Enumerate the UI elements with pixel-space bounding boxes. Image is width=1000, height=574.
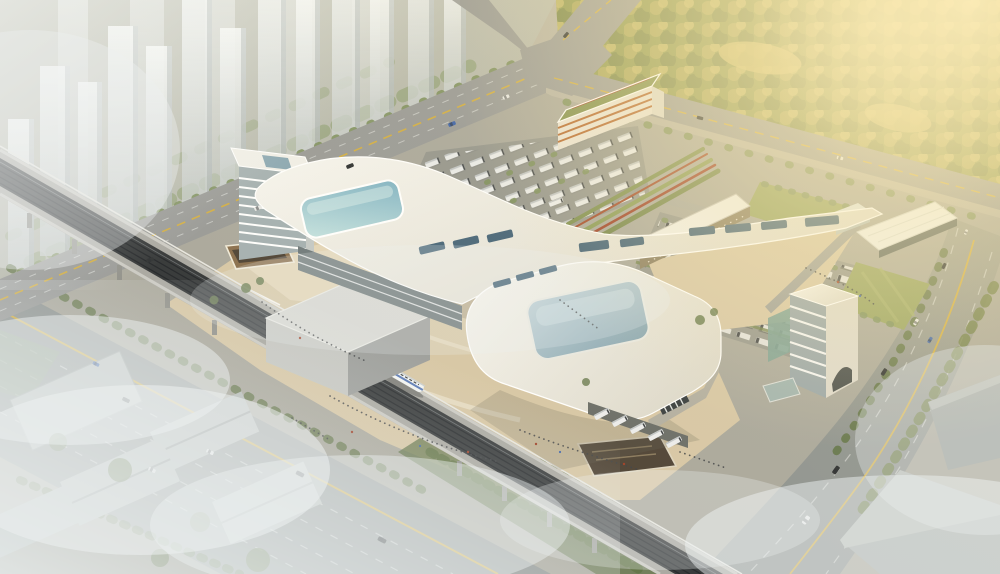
aerial-rendering (0, 0, 1000, 574)
rendering-canvas (0, 0, 1000, 574)
